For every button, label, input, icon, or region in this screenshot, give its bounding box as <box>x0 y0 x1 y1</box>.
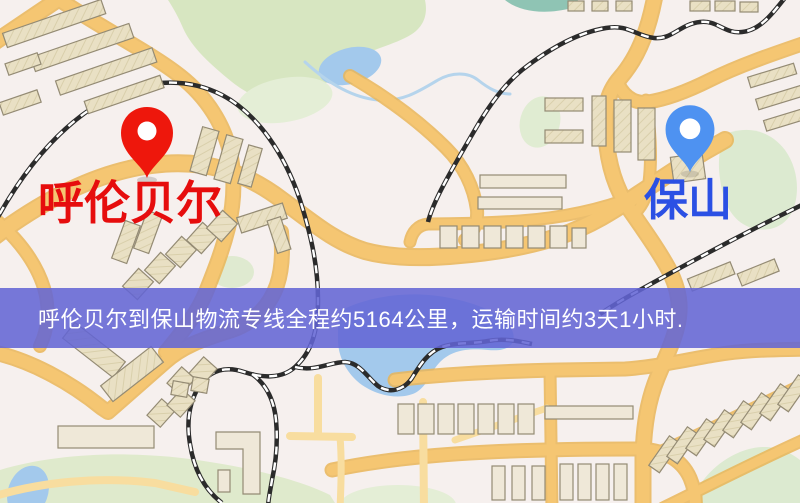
map-screenshot: 呼伦贝尔 保山 呼伦贝尔到保山物流专线全程约5164公里，运输时间约3天1小时. <box>0 0 800 503</box>
route-info-banner: 呼伦贝尔到保山物流专线全程约5164公里，运输时间约3天1小时. <box>0 288 800 348</box>
origin-label: 呼伦贝尔 <box>38 177 222 229</box>
pin-hole <box>138 122 157 141</box>
destination-label: 保山 <box>644 176 732 225</box>
pin-hole <box>680 118 701 139</box>
destination-marker[interactable]: 保山 <box>644 105 732 225</box>
route-info-text: 呼伦贝尔到保山物流专线全程约5164公里，运输时间约3天1小时. <box>38 302 684 334</box>
map-image[interactable]: 呼伦贝尔 保山 <box>0 0 800 503</box>
